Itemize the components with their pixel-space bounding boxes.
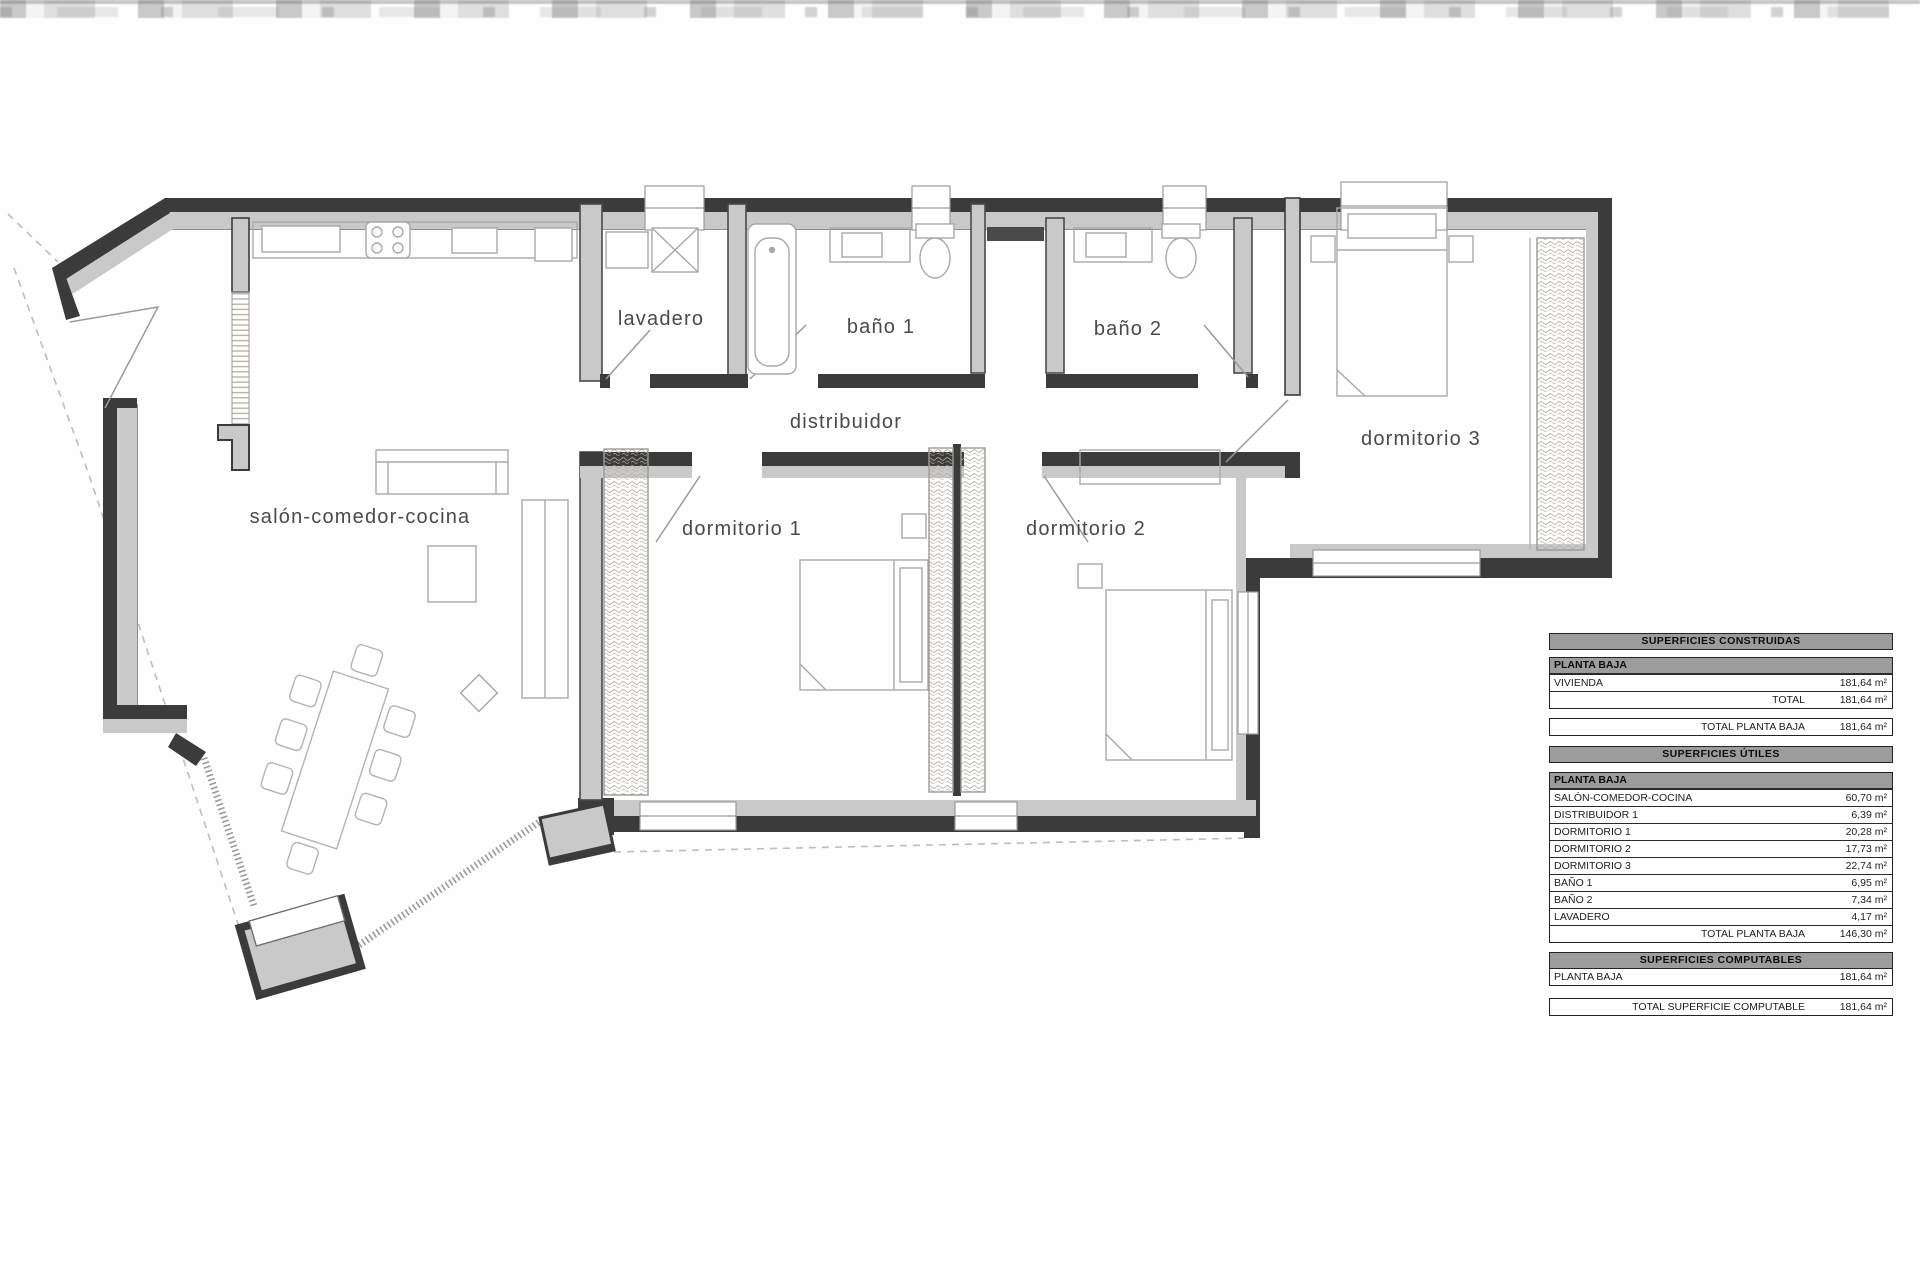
- computable-section-title: SUPERFICIES COMPUTABLES: [1549, 952, 1893, 968]
- bano2-toilet-icon: [1162, 224, 1200, 278]
- total-value: 181,64 m²: [1817, 999, 1892, 1015]
- row-label: LAVADERO: [1550, 909, 1817, 925]
- terrace-pillar: [235, 894, 366, 1000]
- table-row: BAÑO 1 6,95 m²: [1550, 874, 1892, 891]
- constructed-section: PLANTA BAJA VIVIENDA 181,64 m² TOTAL 181…: [1549, 657, 1893, 709]
- row-value: 181,64 m²: [1817, 675, 1892, 691]
- row-label: DORMITORIO 3: [1550, 858, 1817, 874]
- terrace-glazing: [204, 758, 614, 1000]
- dormitorio2-wardrobe-b: [961, 448, 985, 792]
- row-value: 22,74 m²: [1817, 858, 1892, 874]
- table-row: TOTAL PLANTA BAJA 146,30 m²: [1550, 925, 1892, 942]
- table-row: DORMITORIO 2 17,73 m²: [1550, 840, 1892, 857]
- row-label: SALÓN-COMEDOR-COCINA: [1550, 790, 1817, 806]
- floorplan-page: salón-comedor-cocina lavadero baño 1 bañ…: [0, 0, 1920, 1280]
- table-row: DISTRIBUIDOR 1 6,39 m²: [1550, 806, 1892, 823]
- table-row: VIVIENDA 181,64 m²: [1550, 674, 1892, 691]
- constructed-total-box: TOTAL PLANTA BAJA 181,64 m²: [1549, 718, 1893, 736]
- row-label: DISTRIBUIDOR 1: [1550, 807, 1817, 823]
- dormitorio3-wardrobe: [1537, 238, 1584, 550]
- bano2-sink: [1074, 228, 1152, 262]
- row-value: 181,64 m²: [1817, 969, 1892, 985]
- total-value: 146,30 m²: [1817, 926, 1892, 942]
- row-label: DORMITORIO 2: [1550, 841, 1817, 857]
- row-label: PLANTA BAJA: [1550, 969, 1817, 985]
- row-value: 4,17 m²: [1817, 909, 1892, 925]
- computable-total-box: TOTAL SUPERFICIE COMPUTABLE 181,64 m²: [1549, 998, 1893, 1016]
- table-row: SALÓN-COMEDOR-COCINA 60,70 m²: [1550, 789, 1892, 806]
- total-value: 181,64 m²: [1817, 719, 1892, 735]
- row-label: VIVIENDA: [1550, 675, 1817, 691]
- row-value: 60,70 m²: [1817, 790, 1892, 806]
- cropped-content-strip: [0, 0, 1920, 26]
- row-label: BAÑO 2: [1550, 892, 1817, 908]
- dormitorio3-bed: [1311, 208, 1473, 396]
- bano1-sink: [830, 228, 910, 262]
- bano1-toilet-icon: [916, 224, 954, 278]
- room-label-salon: salón-comedor-cocina: [250, 506, 471, 528]
- tv-cabinet: [522, 500, 568, 698]
- sofa: [376, 450, 508, 494]
- window-bottom-dormitorio2: [955, 802, 1017, 830]
- entry-door: [70, 307, 158, 408]
- room-label-lavadero: lavadero: [618, 308, 704, 330]
- row-value: 17,73 m²: [1817, 841, 1892, 857]
- row-label: DORMITORIO 1: [1550, 824, 1817, 840]
- room-label-bano1: baño 1: [847, 316, 915, 338]
- table-row: BAÑO 2 7,34 m²: [1550, 891, 1892, 908]
- total-label: TOTAL PLANTA BAJA: [1550, 719, 1817, 735]
- constructed-subheader: PLANTA BAJA: [1550, 658, 1892, 674]
- row-label: TOTAL: [1550, 692, 1817, 708]
- row-value: 181,64 m²: [1817, 692, 1892, 708]
- coffee-table: [428, 546, 476, 602]
- constructed-section-title: SUPERFICIES CONSTRUIDAS: [1549, 633, 1893, 650]
- row-value: 20,28 m²: [1817, 824, 1892, 840]
- dormitorio2-wardrobe: [929, 448, 953, 792]
- side-chair: [461, 675, 498, 712]
- lavadero-door: [606, 330, 650, 379]
- bathtub-icon: [748, 224, 796, 374]
- washing-machine-icon: [606, 228, 698, 272]
- room-label-dormitorio2: dormitorio 2: [1026, 518, 1146, 540]
- dormitorio1-wardrobe: [604, 449, 648, 795]
- window-right-dormitorio2: [1238, 592, 1258, 734]
- dormitorio1-bed: [800, 514, 928, 690]
- areas-summary-table: SUPERFICIES CONSTRUIDAS PLANTA BAJA VIVI…: [1549, 633, 1893, 1016]
- window-bottom-dormitorio3: [1313, 550, 1480, 576]
- room-label-dormitorio3: dormitorio 3: [1361, 428, 1481, 450]
- dining-table-set: [239, 628, 431, 890]
- row-value: 7,34 m²: [1817, 892, 1892, 908]
- computable-section: PLANTA BAJA 181,64 m²: [1549, 968, 1893, 986]
- useful-section: PLANTA BAJA SALÓN-COMEDOR-COCINA 60,70 m…: [1549, 772, 1893, 943]
- table-row: DORMITORIO 1 20,28 m²: [1550, 823, 1892, 840]
- useful-subheader: PLANTA BAJA: [1550, 773, 1892, 789]
- row-label: BAÑO 1: [1550, 875, 1817, 891]
- total-label: TOTAL PLANTA BAJA: [1550, 926, 1817, 942]
- room-label-distribuidor: distribuidor: [790, 411, 902, 433]
- terrace-pier: [540, 804, 614, 864]
- dormitorio2-bed: [1078, 564, 1232, 760]
- window-bottom-dormitorio1: [640, 802, 736, 830]
- table-row: LAVADERO 4,17 m²: [1550, 908, 1892, 925]
- table-row: TOTAL 181,64 m²: [1550, 691, 1892, 708]
- table-row: PLANTA BAJA 181,64 m²: [1550, 969, 1892, 985]
- stove-icon: [366, 222, 410, 258]
- room-label-bano2: baño 2: [1094, 318, 1162, 340]
- total-label: TOTAL SUPERFICIE COMPUTABLE: [1550, 999, 1817, 1015]
- row-value: 6,95 m²: [1817, 875, 1892, 891]
- row-value: 6,39 m²: [1817, 807, 1892, 823]
- useful-section-title: SUPERFICIES ÚTILES: [1549, 746, 1893, 763]
- window-top-lavadero: [645, 186, 704, 230]
- room-label-dormitorio1: dormitorio 1: [682, 518, 802, 540]
- table-row: DORMITORIO 3 22,74 m²: [1550, 857, 1892, 874]
